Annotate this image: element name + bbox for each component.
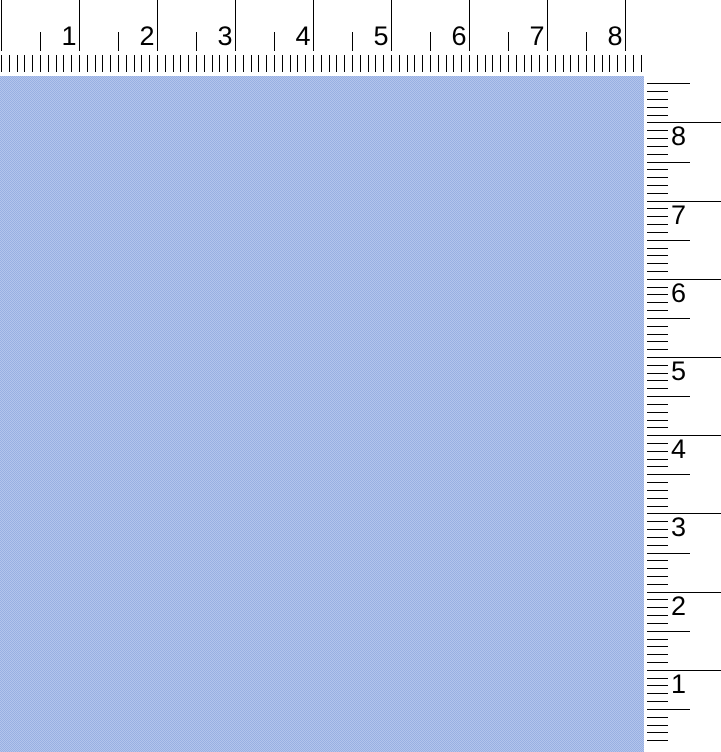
ruler-tick	[647, 412, 668, 413]
ruler-tick	[79, 55, 80, 72]
h-ruler-unit-label: 6	[444, 23, 474, 50]
ruler-tick	[235, 55, 236, 72]
ruler-tick	[266, 55, 267, 72]
ruler-tick	[647, 732, 668, 733]
ruler-tick	[188, 55, 189, 72]
ruler-tick	[647, 177, 668, 178]
ruler-tick	[329, 55, 330, 72]
ruler-tick	[647, 287, 668, 288]
ruler-tick-half	[352, 32, 353, 51]
ruler-tick	[602, 55, 603, 72]
ruler-tick	[422, 55, 423, 72]
ruler-tick	[647, 310, 668, 311]
ruler-tick	[24, 55, 25, 72]
ruler-tick	[391, 55, 392, 72]
ruler-tick	[647, 537, 668, 538]
ruler-tick	[578, 55, 579, 72]
ruler-tick	[126, 55, 127, 72]
ruler-tick	[647, 341, 668, 342]
ruler-tick	[633, 55, 634, 72]
ruler-tick	[321, 55, 322, 72]
h-ruler-unit-label: 5	[366, 23, 396, 50]
ruler-tick	[430, 55, 431, 72]
ruler-tick	[647, 380, 668, 381]
ruler-tick-half	[647, 162, 690, 163]
ruler-tick	[647, 99, 668, 100]
v-ruler-unit-label: 7	[671, 202, 686, 229]
ruler-tick	[453, 55, 454, 72]
ruler-tick-half	[647, 631, 690, 632]
ruler-tick	[251, 55, 252, 72]
ruler-tick-half	[274, 32, 275, 51]
ruler-tick	[555, 55, 556, 72]
ruler-tick	[625, 55, 626, 72]
v-ruler-unit-label: 2	[671, 593, 686, 620]
ruler-tick	[524, 55, 525, 72]
ruler-tick	[110, 55, 111, 72]
ruler-tick	[414, 55, 415, 72]
ruler-tick	[647, 248, 668, 249]
ruler-tick	[477, 55, 478, 72]
ruler-tick	[647, 662, 668, 663]
ruler-tick	[647, 294, 668, 295]
ruler-tick	[647, 459, 668, 460]
ruler-tick	[647, 146, 668, 147]
ruler-tick	[647, 498, 668, 499]
ruler-tick-half	[647, 553, 690, 554]
ruler-tick	[383, 55, 384, 72]
ruler-tick	[647, 349, 668, 350]
ruler-tick	[547, 55, 548, 72]
ruler-tick-half	[118, 32, 119, 51]
ruler-tick-half	[647, 709, 690, 710]
ruler-tick	[617, 55, 618, 72]
ruler-tick	[40, 55, 41, 72]
ruler-tick	[258, 55, 259, 72]
ruler-tick	[647, 521, 668, 522]
ruler-tick	[360, 55, 361, 72]
ruler-tick	[647, 420, 668, 421]
ruler-tick	[647, 216, 668, 217]
ruler-tick	[647, 607, 668, 608]
vertical-ruler[interactable]: 87654321	[644, 74, 721, 752]
ruler-tick	[173, 55, 174, 72]
ruler-tick	[647, 427, 668, 428]
ruler-tick	[647, 232, 668, 233]
ruler-tick	[17, 55, 18, 72]
ruler-tick	[647, 404, 668, 405]
ruler-tick	[647, 271, 668, 272]
ruler-tick	[274, 55, 275, 72]
ruler-tick	[647, 365, 668, 366]
ruler-tick	[647, 154, 668, 155]
ruler-tick-half	[647, 240, 690, 241]
h-ruler-unit-label: 7	[522, 23, 552, 50]
ruler-tick	[407, 55, 408, 72]
ruler-tick	[87, 55, 88, 72]
ruler-tick	[647, 725, 668, 726]
ruler-tick	[570, 55, 571, 72]
ruler-tick-half	[647, 318, 690, 319]
ruler-tick	[647, 193, 668, 194]
ruler-tick	[647, 373, 668, 374]
ruler-tick	[647, 560, 668, 561]
ruler-tick	[134, 55, 135, 72]
ruler-tick	[647, 91, 668, 92]
ruler-tick	[647, 115, 668, 116]
ruler-tick	[313, 55, 314, 72]
ruler-tick	[157, 55, 158, 72]
ruler-tick	[1, 55, 2, 72]
ruler-tick	[647, 482, 668, 483]
ruler-tick	[32, 55, 33, 72]
ruler-tick	[647, 599, 668, 600]
ruler-tick	[102, 55, 103, 72]
h-ruler-unit-label: 8	[600, 23, 630, 50]
ruler-tick	[165, 55, 166, 72]
v-ruler-unit-label: 8	[671, 123, 686, 150]
ruler-tick	[344, 55, 345, 72]
ruler-tick	[305, 55, 306, 72]
ruler-tick	[297, 55, 298, 72]
ruler-tick	[212, 55, 213, 72]
v-ruler-unit-label: 4	[671, 436, 686, 463]
ruler-tick	[48, 55, 49, 72]
ruler-tick	[485, 55, 486, 72]
ruler-tick	[647, 334, 668, 335]
h-ruler-unit-label: 3	[210, 23, 240, 50]
ruler-tick	[9, 55, 10, 72]
horizontal-ruler[interactable]: 12345678	[0, 0, 644, 76]
ruler-tick-half	[647, 396, 690, 397]
ruler-tick	[647, 224, 668, 225]
ruler-tick	[647, 615, 668, 616]
ruler-tick	[118, 55, 119, 72]
ruler-tick	[647, 208, 668, 209]
ruler-tick	[641, 55, 642, 72]
ruler-tick	[647, 693, 668, 694]
ruler-tick	[647, 545, 668, 546]
ruler-tick-major	[1, 0, 2, 51]
ruler-tick	[647, 685, 668, 686]
v-ruler-unit-label: 3	[671, 514, 686, 541]
ruler-tick	[516, 55, 517, 72]
v-ruler-unit-label: 5	[671, 358, 686, 385]
design-canvas[interactable]	[0, 76, 644, 752]
ruler-tick	[647, 623, 668, 624]
ruler-tick	[647, 185, 668, 186]
ruler-tick	[204, 55, 205, 72]
ruler-tick	[508, 55, 509, 72]
ruler-tick	[446, 55, 447, 72]
ruler-tick	[647, 506, 668, 507]
ruler-tick	[594, 55, 595, 72]
ruler-tick	[647, 678, 668, 679]
ruler-tick	[71, 55, 72, 72]
ruler-tick	[352, 55, 353, 72]
ruler-tick	[63, 55, 64, 72]
v-ruler-unit-label: 6	[671, 280, 686, 307]
ruler-tick	[647, 255, 668, 256]
ruler-tick	[647, 646, 668, 647]
ruler-tick	[647, 138, 668, 139]
ruler-tick-half	[647, 474, 690, 475]
ruler-tick	[219, 55, 220, 72]
ruler-tick	[563, 55, 564, 72]
ruler-tick	[531, 55, 532, 72]
v-ruler-unit-label: 1	[671, 671, 686, 698]
ruler-tick	[95, 55, 96, 72]
ruler-tick	[227, 55, 228, 72]
ruler-tick	[336, 55, 337, 72]
h-ruler-unit-label: 1	[54, 23, 84, 50]
ruler-tick	[56, 55, 57, 72]
ruler-tick	[399, 55, 400, 72]
ruler-tick	[492, 55, 493, 72]
ruler-tick	[539, 55, 540, 72]
ruler-tick	[647, 740, 668, 741]
ruler-tick	[647, 451, 668, 452]
ruler-tick	[141, 55, 142, 72]
ruler-tick	[647, 584, 668, 585]
ruler-tick	[586, 55, 587, 72]
ruler-tick	[375, 55, 376, 72]
ruler-tick	[647, 130, 668, 131]
h-ruler-unit-label: 2	[132, 23, 162, 50]
ruler-tick	[196, 55, 197, 72]
ruler-tick	[647, 490, 668, 491]
ruler-tick-half	[430, 32, 431, 51]
ruler-tick	[647, 568, 668, 569]
ruler-tick-half	[40, 32, 41, 51]
ruler-tick	[647, 639, 668, 640]
ruler-tick	[647, 529, 668, 530]
ruler-tick	[647, 576, 668, 577]
ruler-tick	[180, 55, 181, 72]
ruler-tick	[647, 388, 668, 389]
ruler-tick	[647, 263, 668, 264]
ruler-tick	[647, 654, 668, 655]
ruler-tick	[438, 55, 439, 72]
ruler-tick	[368, 55, 369, 72]
ruler-tick	[647, 326, 668, 327]
ruler-tick	[469, 55, 470, 72]
ruler-tick	[647, 302, 668, 303]
ruler-tick	[282, 55, 283, 72]
h-ruler-unit-label: 4	[288, 23, 318, 50]
ruler-tick-half	[647, 83, 690, 84]
ruler-tick	[647, 701, 668, 702]
app-window: 12345678 87654321	[0, 0, 721, 752]
ruler-tick	[609, 55, 610, 72]
ruler-tick	[243, 55, 244, 72]
ruler-tick	[461, 55, 462, 72]
ruler-tick-half	[508, 32, 509, 51]
ruler-tick	[647, 107, 668, 108]
ruler-tick	[500, 55, 501, 72]
ruler-tick-half	[586, 32, 587, 51]
ruler-tick	[149, 55, 150, 72]
ruler-tick	[647, 443, 668, 444]
ruler-tick-half	[196, 32, 197, 51]
ruler-tick	[647, 466, 668, 467]
ruler-tick	[647, 169, 668, 170]
ruler-tick	[647, 717, 668, 718]
ruler-tick	[290, 55, 291, 72]
